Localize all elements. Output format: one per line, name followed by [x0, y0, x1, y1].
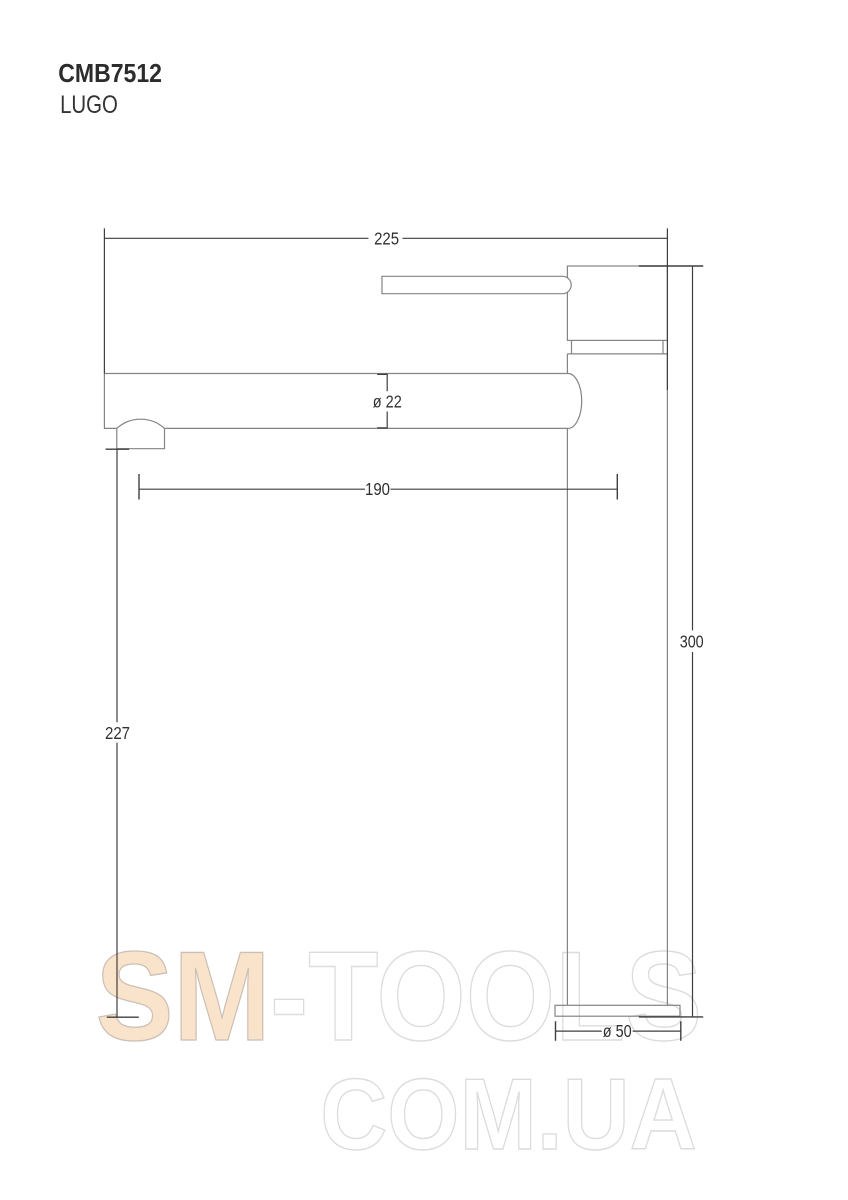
svg-text:CMB7512: CMB7512: [58, 58, 162, 88]
svg-text:ø 22: ø 22: [373, 392, 402, 412]
svg-text:ø 50: ø 50: [603, 1021, 632, 1041]
svg-text:300: 300: [680, 632, 704, 652]
svg-text:227: 227: [105, 723, 130, 743]
svg-text:225: 225: [374, 228, 399, 248]
svg-text:-TOOLS: -TOOLS: [270, 925, 702, 1067]
svg-text:COM.UA: COM.UA: [320, 1057, 697, 1171]
svg-text:LUGO: LUGO: [60, 91, 118, 119]
svg-text:SM: SM: [96, 925, 271, 1067]
svg-text:190: 190: [365, 479, 390, 499]
